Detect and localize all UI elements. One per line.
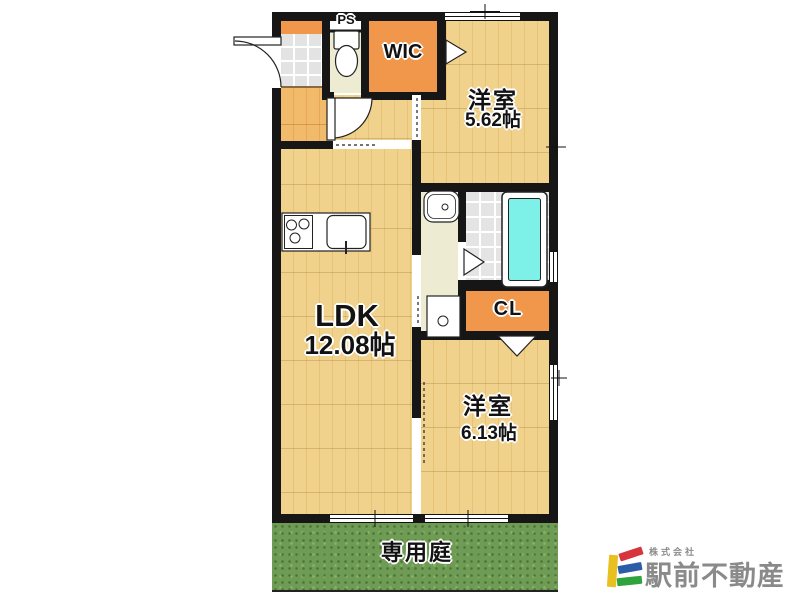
window-bedroom1-top <box>445 12 520 21</box>
opening-entrance-door <box>272 42 281 88</box>
opening-hall-to-bedroom1 <box>412 95 421 140</box>
wall-bottom-center <box>413 514 425 523</box>
garden-label: 専用庭 <box>381 541 453 564</box>
window-ldk-garden <box>330 514 413 523</box>
toilet-floor <box>330 21 361 93</box>
window-bathroom <box>549 252 558 282</box>
washroom-floor <box>421 188 458 332</box>
cl-label: CL <box>494 299 523 320</box>
window-bedroom2-garden <box>425 514 508 523</box>
wall-left-lower <box>272 88 281 523</box>
bedroom2-size: 6.13帖 <box>461 424 517 444</box>
company-name: 駅前不動産 <box>645 554 785 593</box>
wall-right-upper <box>549 12 558 252</box>
wall-bathroom-bottom <box>458 280 558 291</box>
logo-mark-blue-stripe-icon <box>617 562 642 574</box>
wall-toilet-left <box>322 12 330 97</box>
wic-label: WIC <box>384 42 423 63</box>
window-bedroom2-right <box>549 365 558 420</box>
logo-mark-red-stripe-icon <box>618 546 643 561</box>
ldk-name: LDK <box>315 300 379 333</box>
bedroom1-name: 洋室 <box>468 88 518 112</box>
company-logo: 株式会社 駅前不動産 <box>600 538 796 596</box>
wall-bottom-right <box>508 514 558 523</box>
opening-ldk-to-washroom <box>412 255 421 327</box>
opening-hall-to-ldk <box>333 140 411 149</box>
bathroom-floor <box>466 188 549 280</box>
wall-cl-bottom <box>412 331 558 340</box>
wall-ldk-right-upper <box>412 140 421 255</box>
hallway-floor <box>330 95 412 142</box>
wall-bottom-left <box>272 514 330 523</box>
ps-label: PS <box>337 13 354 27</box>
wall-left-upper <box>272 12 281 42</box>
ldk-size: 12.08帖 <box>304 332 395 359</box>
wall-cl-left <box>458 291 466 331</box>
floor-plan-canvas: PS WIC 洋室 5.62帖 LDK 12.08帖 CL 洋室 6.13帖 専… <box>0 0 800 600</box>
wall-bedroom1-bottom <box>412 183 558 192</box>
wall-wic-bottom <box>361 92 446 100</box>
wall-ldk-right-lower <box>412 327 421 418</box>
wall-wic-left <box>361 12 369 98</box>
wall-wic-right <box>437 12 446 98</box>
opening-ldk-to-bedroom2 <box>412 418 421 514</box>
wall-right-middle <box>549 282 558 365</box>
entrance-tile-floor <box>281 34 322 86</box>
wall-wash-bath-divider <box>458 188 466 242</box>
shoe-cabinet <box>281 21 322 35</box>
wall-hall-ldk <box>272 141 333 149</box>
logo-mark-green-stripe-icon <box>617 576 643 587</box>
bedroom1-size: 5.62帖 <box>465 111 521 131</box>
bedroom2-name: 洋室 <box>463 394 513 418</box>
wall-top-left <box>272 12 445 21</box>
wall-toilet-bottom <box>322 92 334 100</box>
entrance-step-line <box>281 86 322 88</box>
opening-bathroom-door <box>458 242 466 280</box>
wall-right-lower <box>549 420 558 523</box>
